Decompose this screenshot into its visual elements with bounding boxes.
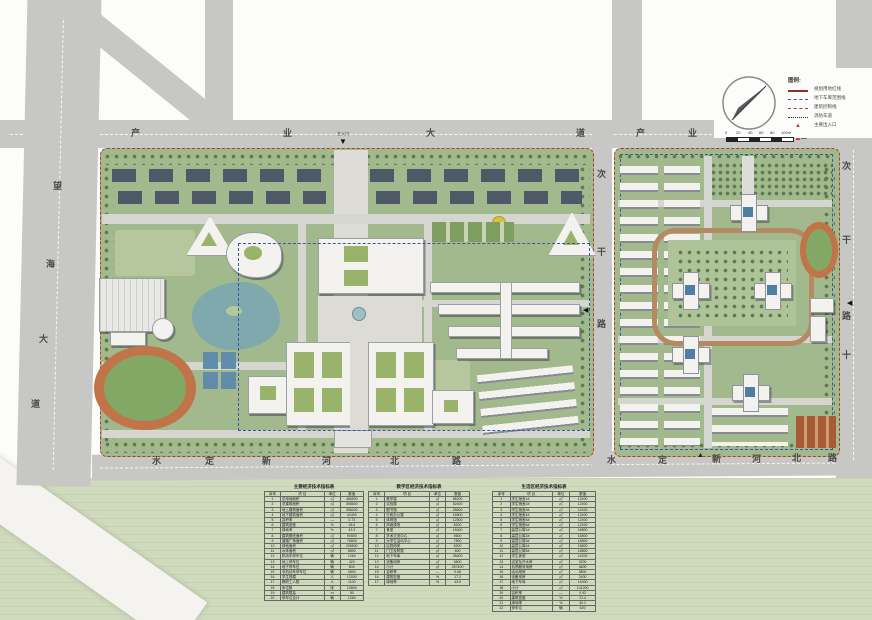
- road-label-char: 大: [426, 129, 435, 138]
- table-title: 生活区经济技术指标表: [492, 484, 596, 490]
- entrance-marker-east-road: ◀: [847, 300, 852, 308]
- road-label-char: 道: [576, 129, 585, 138]
- legend-item-label: 消防车道: [814, 113, 832, 119]
- street-top-1: [205, 0, 233, 120]
- road-label-char: 河: [322, 457, 331, 466]
- south-gate: [334, 430, 372, 448]
- road-label-char: 新: [712, 455, 721, 464]
- road-label-char: 干: [842, 236, 851, 245]
- main-gate-marker: ▼: [339, 138, 347, 146]
- road-label-char: 次: [597, 170, 606, 179]
- legend-item-label: 主要出入口: [814, 122, 837, 128]
- indicator-table-living: 生活区经济技术指标表 序号项 目单位数值1学生宿舍1#㎡124002学生宿舍2#…: [492, 484, 596, 612]
- road-label-char: 水: [607, 456, 616, 465]
- road-label-char: 产: [636, 129, 645, 138]
- service-building: [810, 316, 826, 342]
- road-label-char: 望: [53, 182, 62, 191]
- stadium-infield: [104, 355, 186, 421]
- road-label-char: 定: [658, 456, 667, 465]
- north-slab-row-2a: [370, 169, 582, 182]
- road-west: [16, 0, 101, 487]
- residential-tower-3: [754, 272, 790, 308]
- legend-symbol-dash-red: [788, 108, 808, 109]
- road-label-char: 干: [597, 248, 606, 257]
- scale-bar: [726, 137, 794, 142]
- legend-item-label: 建筑控制线: [814, 104, 837, 110]
- indicator-table-overall: 主要经济技术指标表 序号项 目单位数值1总用地面积㎡4865002总建筑面积㎡3…: [264, 484, 364, 601]
- street-top-2: [612, 0, 642, 120]
- scale-number: 80: [770, 130, 774, 135]
- scale-number: 40: [748, 130, 752, 135]
- road-label-char: 业: [688, 129, 697, 138]
- residential-tower-2: [672, 272, 708, 308]
- north-slab-row-2b: [376, 191, 582, 204]
- residential-tower-4: [672, 336, 708, 372]
- road-label-char: 定: [205, 457, 214, 466]
- north-slab-row-1b: [118, 191, 326, 204]
- legend-symbol-dot-black: [788, 117, 808, 118]
- road-label-char: 产: [131, 129, 140, 138]
- service-building: [810, 298, 834, 313]
- entrance-marker-south-east: ▲: [697, 452, 704, 460]
- road-label-char: 北: [390, 457, 399, 466]
- road-label-char: 路: [842, 312, 851, 321]
- legend-title: 图例:: [788, 76, 801, 84]
- legend-item-label: 规划用地红线: [814, 86, 841, 92]
- road-label-char: 路: [828, 454, 837, 463]
- legend-symbol-dash-blue: [788, 99, 808, 100]
- residential-tower-5: [732, 374, 768, 410]
- residential-slabs-south: [712, 408, 788, 446]
- road-label-char: 路: [452, 457, 461, 466]
- road-label-char: 路: [597, 320, 606, 329]
- scale-number: 100m: [781, 130, 791, 135]
- basketball-court: [221, 372, 236, 389]
- road-label-char: 大: [39, 335, 48, 344]
- legend-symbol-red-triangle: ▲: [788, 123, 808, 129]
- entrance-marker-middle-road: ◀: [583, 307, 588, 315]
- table-title: 教学区经济技术指标表: [368, 484, 470, 490]
- compass-icon: [720, 74, 778, 132]
- north-slab-row-1a: [112, 169, 326, 182]
- road-label-char: 新: [262, 457, 271, 466]
- road-label-char: 水: [152, 457, 161, 466]
- orange-roof-cluster: [796, 416, 836, 448]
- scale-number: 60: [759, 130, 763, 135]
- scale-number: 20: [736, 130, 740, 135]
- residential-tower-1: [730, 194, 766, 230]
- road-label-char: 道: [31, 400, 40, 409]
- indicator-table-teaching: 教学区经济技术指标表 序号项 目单位数值1教学楼㎡682002实验楼㎡52400…: [368, 484, 470, 586]
- basketball-court: [221, 352, 236, 369]
- road-label-char: 河: [752, 455, 761, 464]
- garden-plots: [432, 222, 514, 242]
- scale-number: 0: [725, 130, 727, 135]
- road-label-char: 海: [46, 260, 55, 269]
- site-plan-canvas: 产 业 大 道 产 业 大 道 望 海 大 道 次 干 路 次 干 路 十 水 …: [0, 0, 872, 620]
- road-label-char: 业: [283, 129, 292, 138]
- main-gate-label: 主入口: [330, 132, 356, 136]
- road-label-char: 次: [842, 162, 851, 171]
- gym-annex: [110, 332, 146, 346]
- legend-item-label: 地下车库范围线: [814, 95, 846, 101]
- legend-symbol-solid-red: [788, 90, 808, 92]
- underground-garage-outline: [238, 243, 590, 431]
- basketball-court: [203, 372, 218, 389]
- basketball-court: [203, 352, 218, 369]
- gym-annex-round: [152, 318, 174, 340]
- table-title: 主要经济技术指标表: [264, 484, 364, 490]
- road-label-char: 北: [792, 454, 801, 463]
- road-label-char: 十: [842, 351, 851, 360]
